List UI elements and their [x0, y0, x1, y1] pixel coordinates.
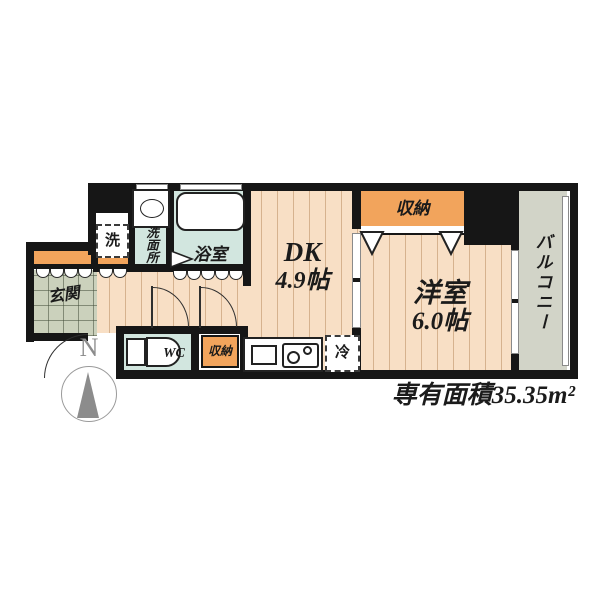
refrigerator-label: 冷: [335, 345, 350, 362]
washroom-label: 洗面所: [138, 220, 164, 270]
balcony-label: バルコニー: [527, 200, 557, 365]
area-note: 専有面積35.35m²: [300, 380, 575, 412]
western-room-label: 洋室 6.0帖: [378, 270, 502, 344]
toilet-tank: [126, 338, 146, 366]
wall-wc-top: [116, 326, 248, 334]
washer-box: 洗: [96, 224, 129, 258]
balcony-label-text: バルコニー: [532, 233, 551, 333]
wall-balcony-left-bottom: [511, 354, 519, 379]
window-bathroom: [180, 184, 242, 190]
kitchen-counter: [243, 337, 323, 372]
dk-size: 4.9帖: [276, 268, 330, 295]
wall-corner-topleft: [88, 183, 134, 213]
bathroom-label: 浴室: [178, 243, 242, 267]
entrance-label-text: 玄関: [47, 285, 81, 307]
stove-burner-small: [303, 346, 312, 355]
area-note-text: 専有面積35.35m²: [392, 382, 575, 410]
compass-needle: [77, 372, 99, 418]
balcony-railing: [562, 196, 569, 366]
wall-balcony-left-top: [511, 183, 519, 251]
balcony-window: [511, 250, 519, 354]
closet-top-label: 収納: [396, 199, 430, 218]
stove-burner-large: [287, 351, 300, 364]
closet-top-band: 収納: [361, 191, 464, 226]
wc-label-text: WC: [163, 346, 185, 362]
bathroom-label-text: 浴室: [193, 245, 227, 264]
dk-label: DK 4.9帖: [250, 234, 355, 298]
wall-right: [570, 183, 578, 379]
compass: N: [55, 334, 125, 426]
wall-corner-topright: [464, 183, 518, 245]
washer-label: 洗: [105, 233, 120, 250]
closet-door-v-marks: [357, 230, 469, 258]
stove-top: [282, 343, 319, 368]
washroom-label-text: 洗面所: [144, 226, 158, 264]
kitchen-sink: [251, 345, 277, 365]
refrigerator-space: 冷: [325, 335, 360, 372]
wc-label: WC: [156, 344, 192, 364]
western-room-size: 6.0帖: [412, 308, 468, 336]
dk-name: DK: [284, 237, 322, 267]
wall-wc-divider: [191, 326, 199, 379]
compass-north-letter: N: [74, 334, 104, 362]
western-room-name: 洋室: [413, 278, 467, 308]
floor-plan: 収納 収納: [0, 0, 600, 600]
vanity-sink: [140, 199, 164, 218]
closet-hall-box: 収納: [201, 335, 239, 368]
balcony-window-tick: [512, 299, 518, 303]
wall-dk-west-top: [352, 183, 361, 229]
bathtub: [176, 192, 245, 231]
closet-hall-label: 収納: [208, 345, 232, 358]
